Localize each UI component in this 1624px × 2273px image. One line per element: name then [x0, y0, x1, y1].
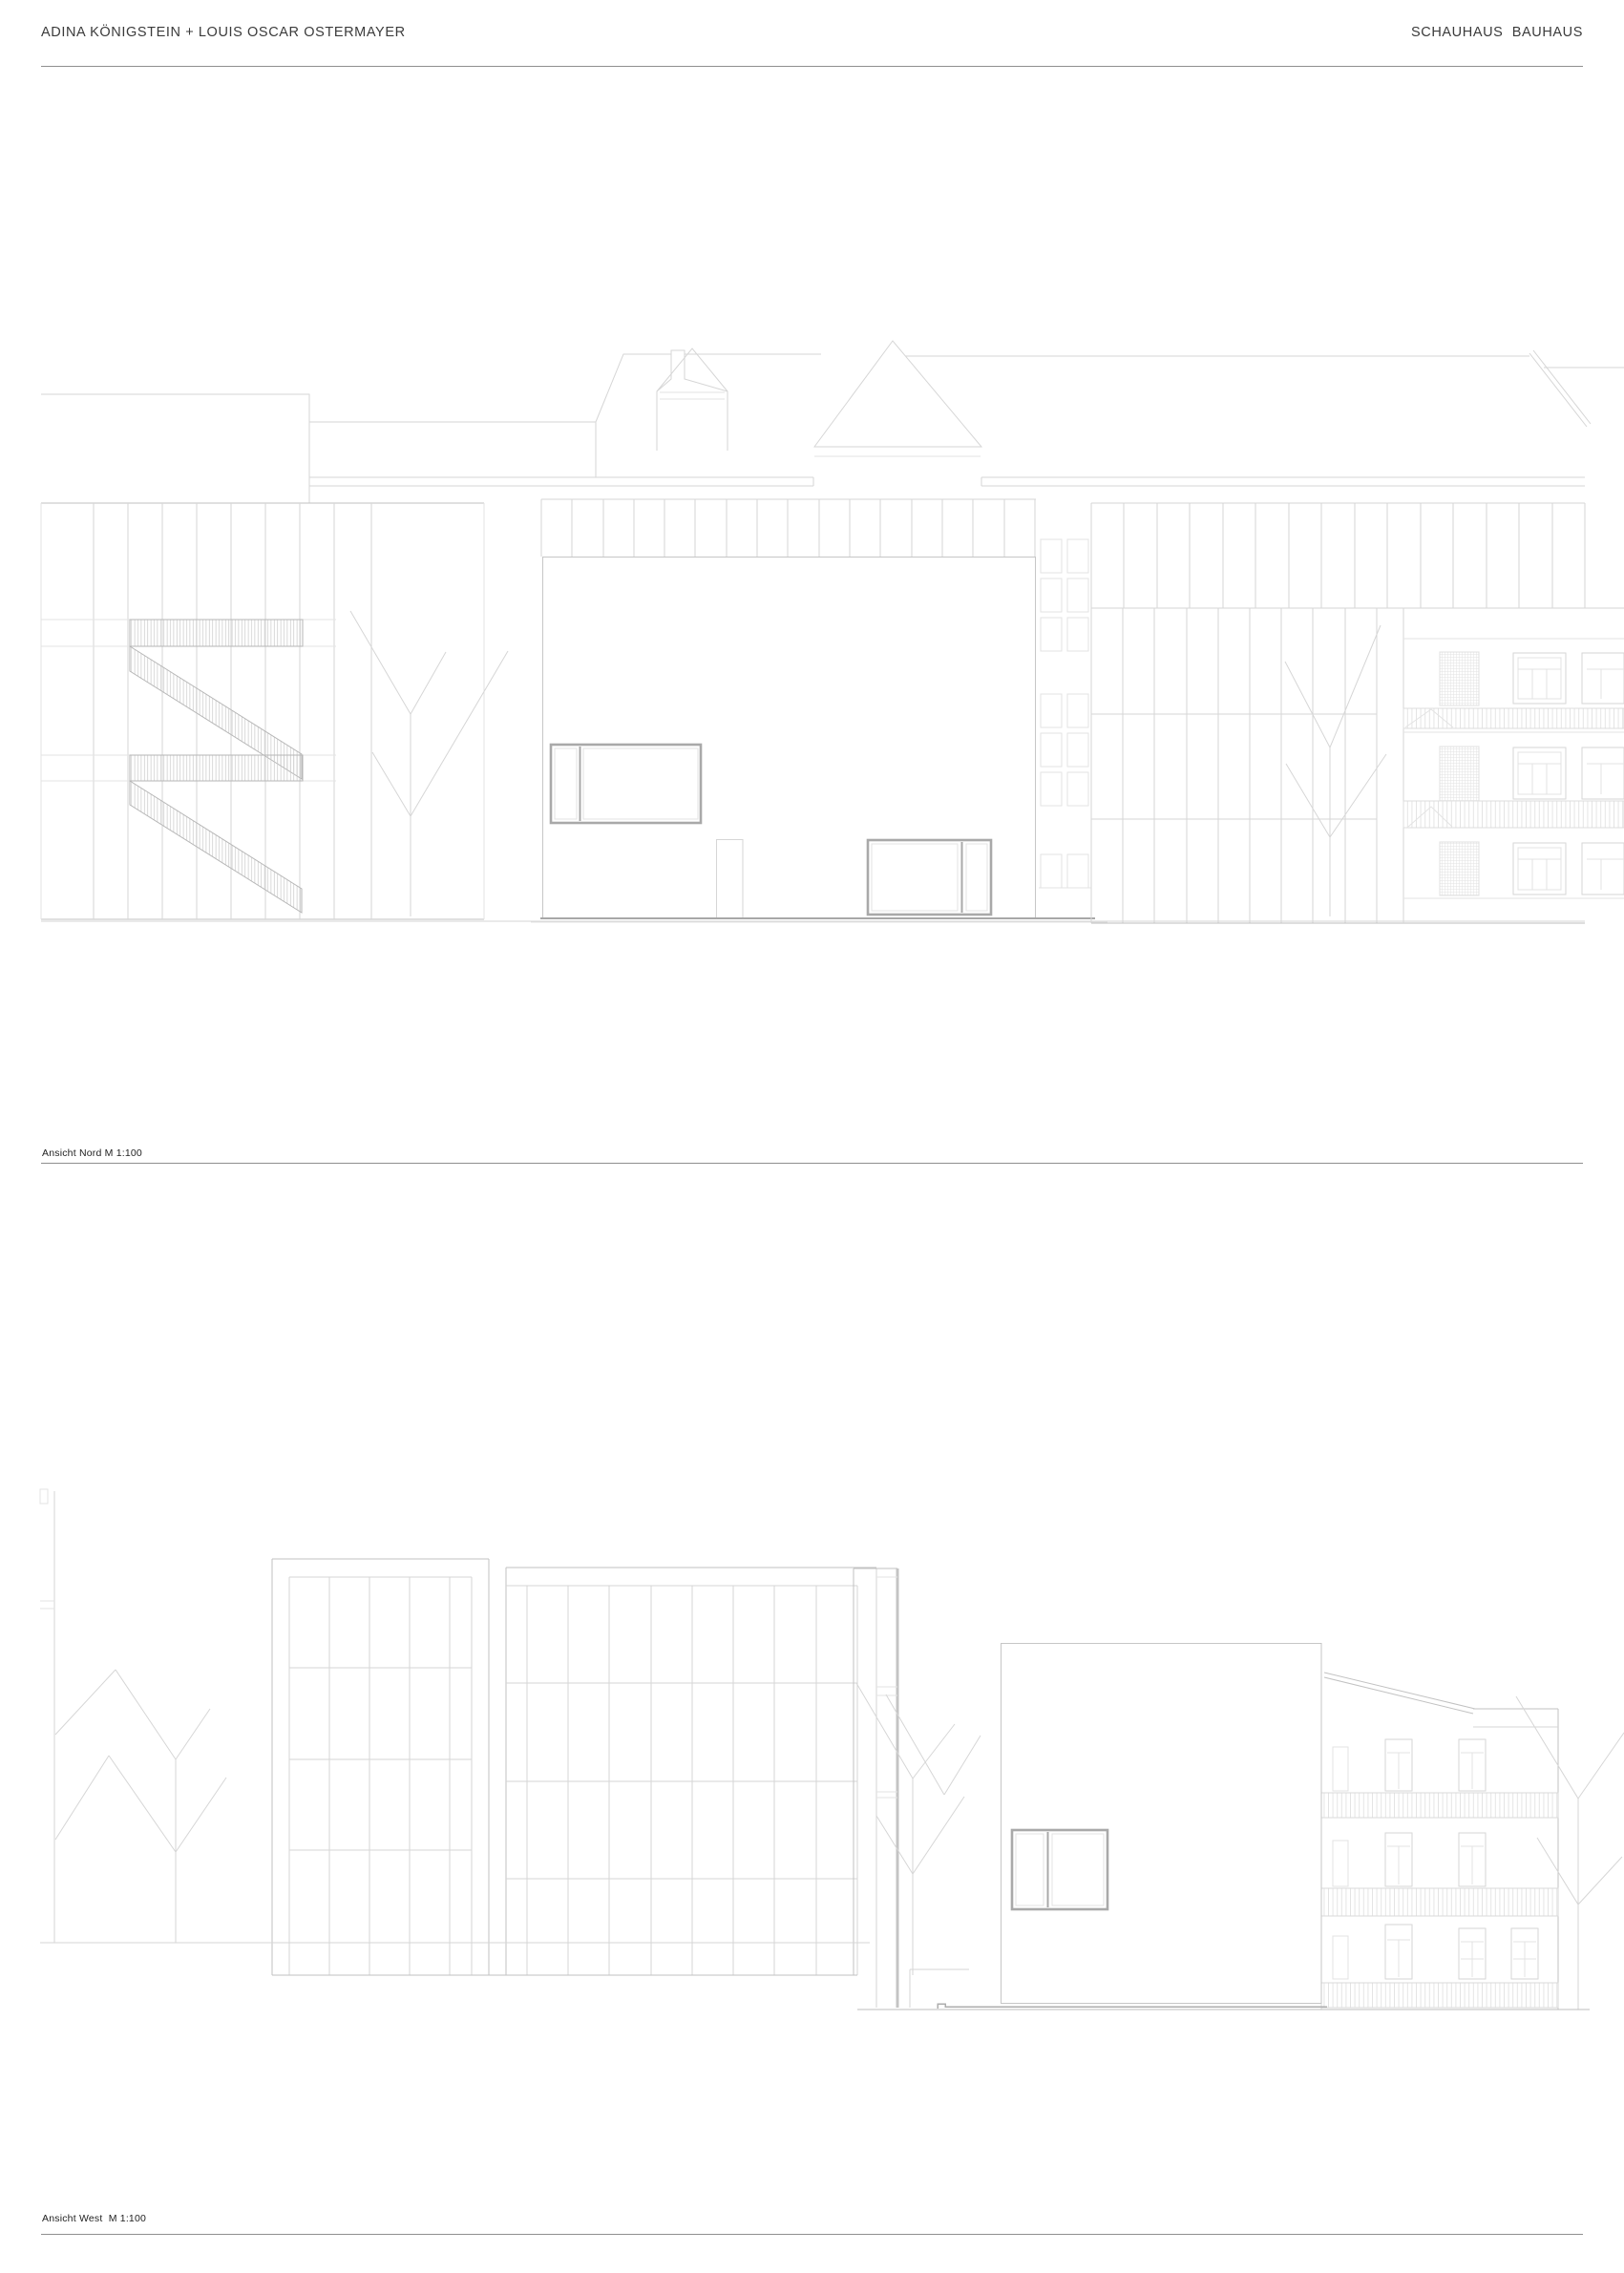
classical-window-row — [1333, 1925, 1538, 1979]
tree-glyph-5 — [1516, 1696, 1624, 2010]
background-grid-building — [1039, 539, 1091, 888]
eaves-band — [309, 477, 1585, 486]
header-project-title: SCHAUHAUS BAUHAUS — [1411, 25, 1583, 40]
west-elevation-drawing — [0, 1480, 1624, 2033]
tree-glyph-4 — [856, 1683, 981, 1975]
tree-glyph-3 — [55, 1670, 226, 1943]
classical-window-row — [1333, 1833, 1486, 1886]
west-elevation-label: Ansicht West M 1:100 — [42, 2213, 146, 2224]
glass-grid-building — [272, 1559, 969, 2008]
classical-facade-north — [1403, 608, 1624, 923]
classical-window-row — [1440, 652, 1624, 705]
tree-glyph-2 — [1285, 625, 1386, 916]
header-authors: ADINA KÖNIGSTEIN + LOUIS OSCAR OSTERMAYE… — [41, 25, 406, 40]
drawing-sheet: ADINA KÖNIGSTEIN + LOUIS OSCAR OSTERMAYE… — [0, 0, 1624, 2273]
west-label-rule — [41, 2234, 1583, 2235]
west-building — [1002, 1644, 1322, 2004]
classical-facade-west — [1321, 1673, 1558, 2010]
site-edge-marker — [40, 1489, 54, 1943]
facade-pillar — [854, 1568, 897, 2008]
north-elevation-drawing — [0, 325, 1624, 945]
balcony-railing-row2 — [1321, 1888, 1558, 1916]
balcony-railing-row3 — [1321, 1983, 1558, 2008]
classical-window-row — [1333, 1739, 1486, 1791]
classical-window-row — [1440, 842, 1624, 895]
balcony-band-lower — [130, 755, 303, 781]
balcony-railing-row1 — [1321, 1793, 1558, 1818]
north-elevation-label: Ansicht Nord M 1:100 — [42, 1147, 142, 1159]
background-rooflines — [41, 341, 1624, 503]
balcony-railing-row1 — [1403, 708, 1624, 728]
header-rule — [41, 66, 1583, 67]
balcony-band-upper — [130, 620, 303, 646]
central-building — [531, 499, 1107, 922]
stair-building — [41, 503, 484, 919]
stair-ramp-lower — [130, 781, 302, 913]
north-label-rule — [41, 1163, 1583, 1164]
balcony-railing-row2 — [1403, 801, 1624, 828]
classical-window-row — [1440, 747, 1624, 801]
